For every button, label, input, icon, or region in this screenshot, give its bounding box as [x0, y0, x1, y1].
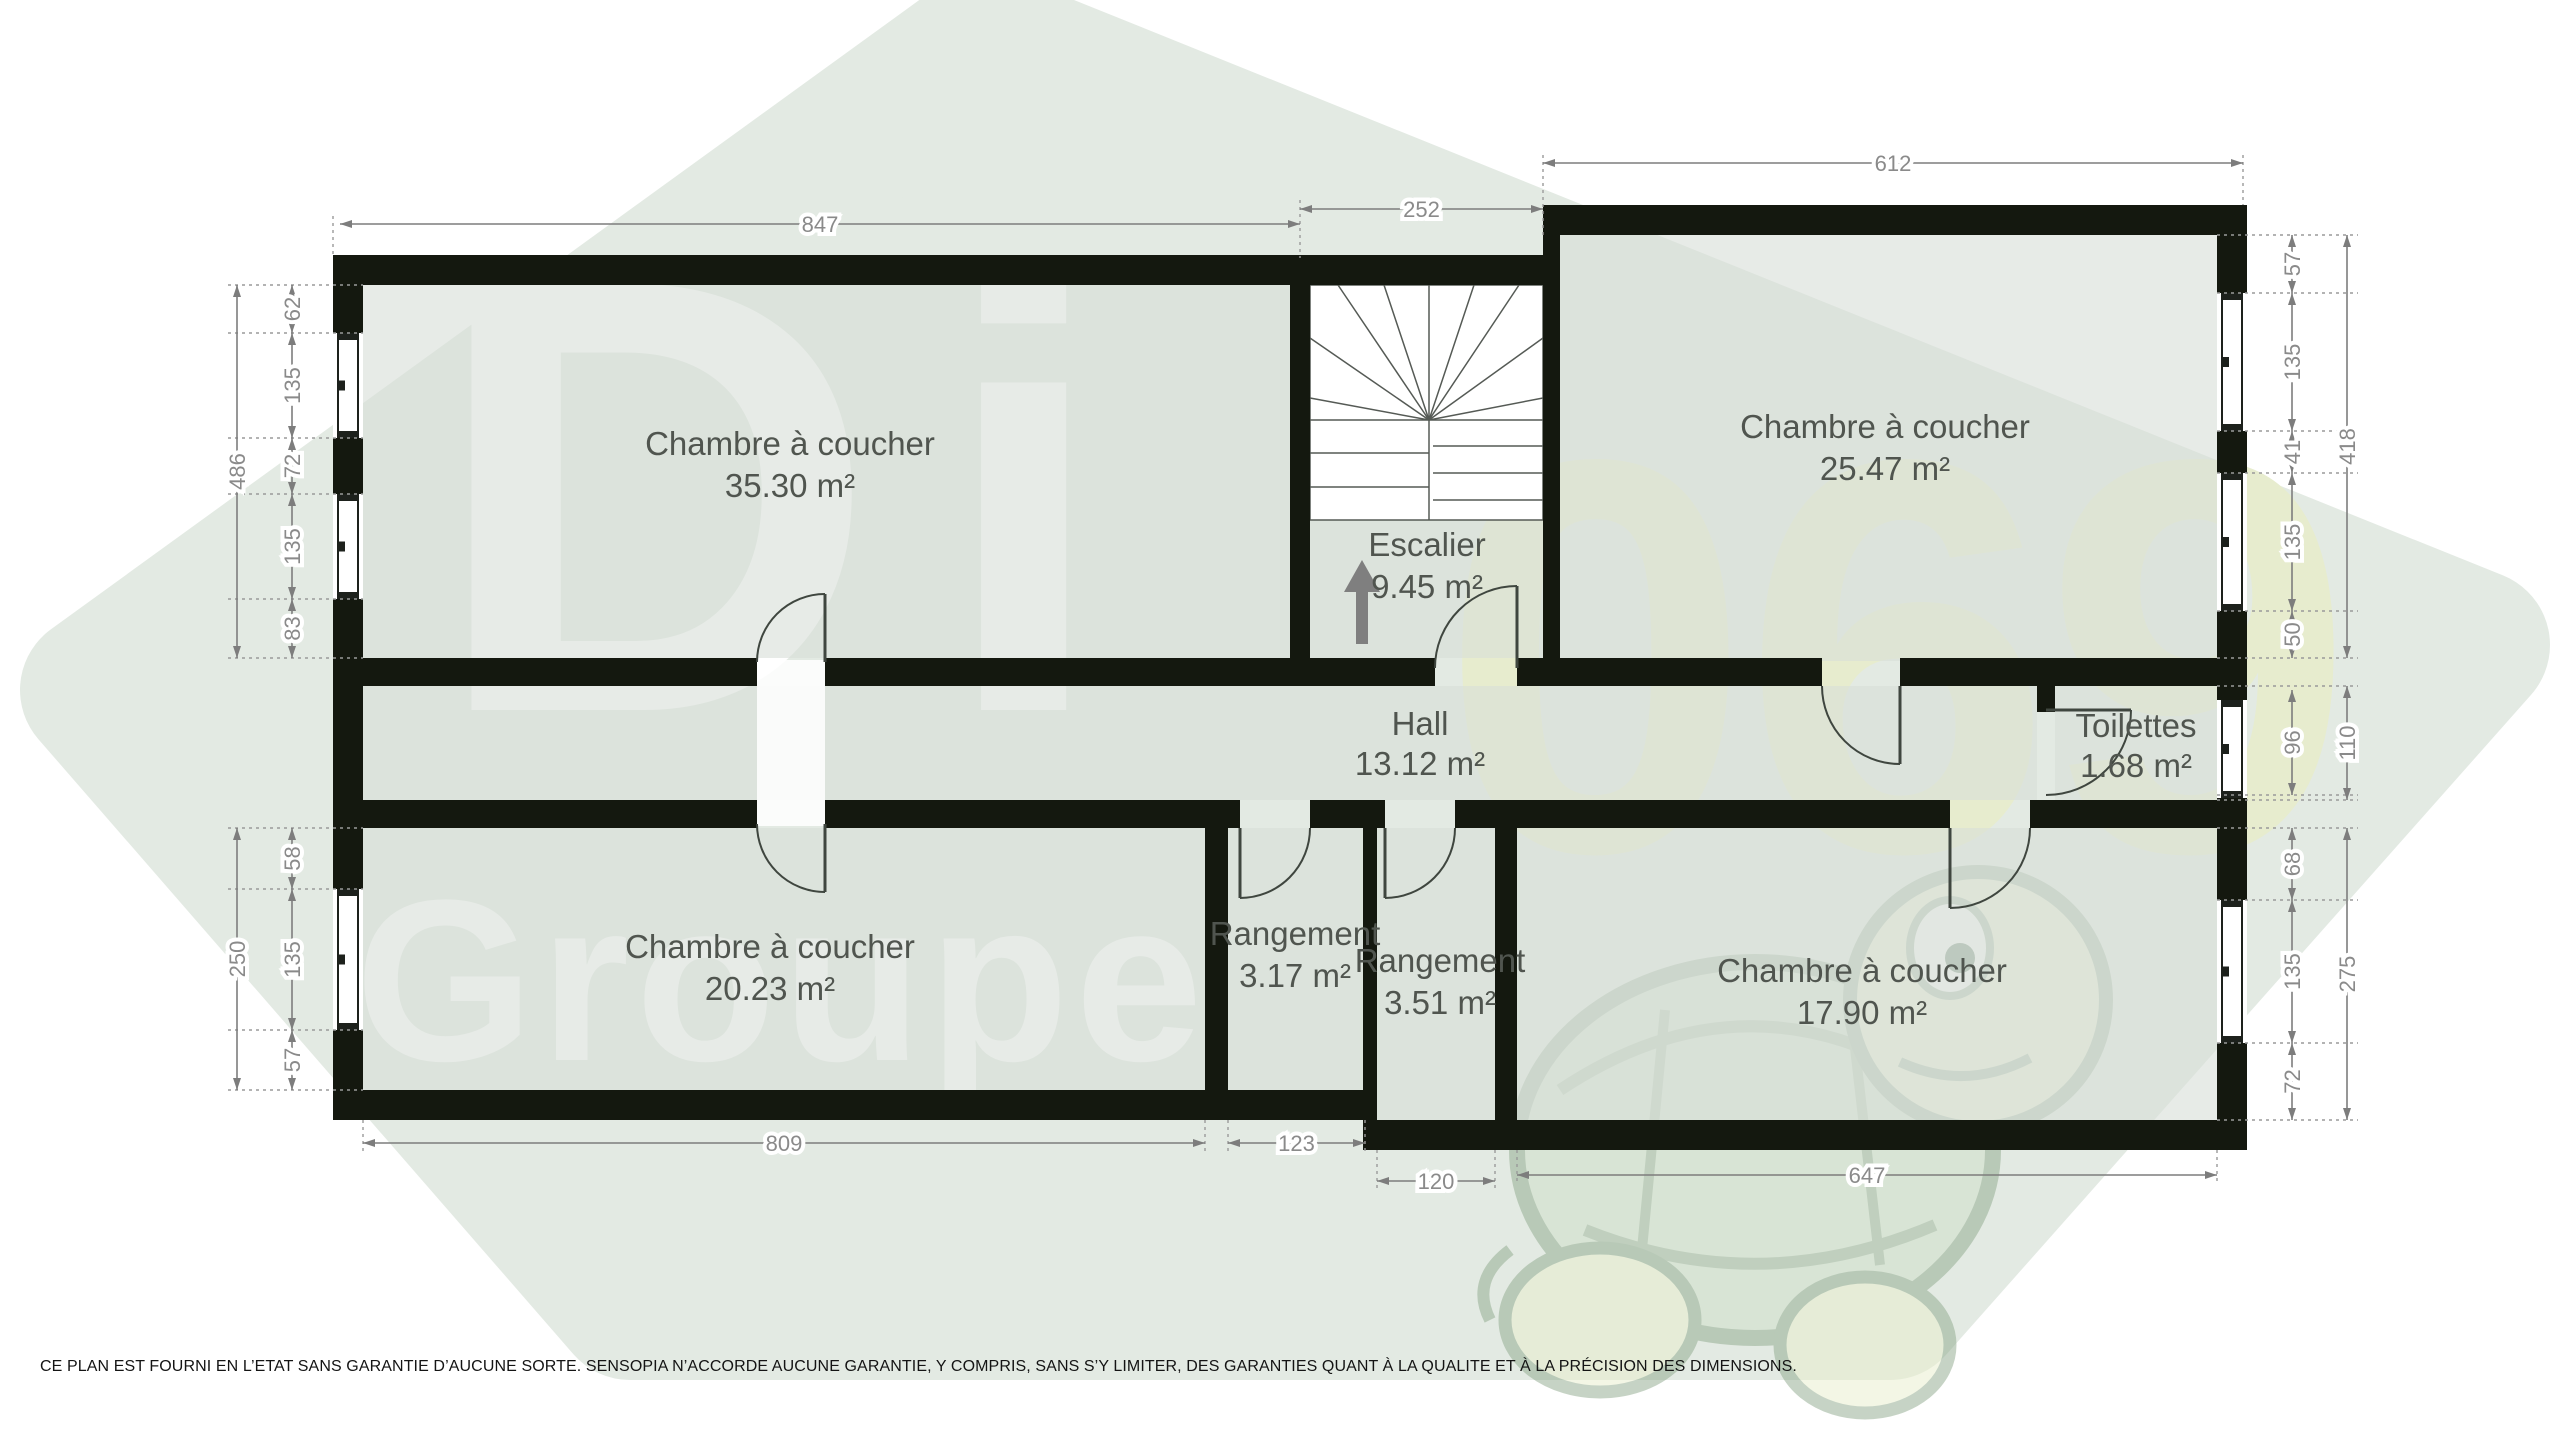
dimension-value: 135 [280, 528, 305, 565]
floorplan-page: 069 Di Groupe [0, 0, 2560, 1440]
dimension-value: 110 [2335, 725, 2360, 760]
dimension-value: 275 [2335, 956, 2360, 993]
dimension-value: 135 [280, 367, 305, 404]
dimension-value: 41 [2280, 440, 2305, 464]
dimension-value: 612 [1875, 151, 1912, 176]
room-label-bedroom-tl: Chambre à coucher [645, 425, 935, 462]
room-area-bedroom-br: 17.90 m² [1797, 994, 1927, 1031]
room-label-bedroom-br: Chambre à coucher [1717, 952, 2007, 989]
dimension-value: 135 [2280, 344, 2305, 381]
dimension-value: 250 [225, 941, 250, 978]
room-label-stairs: Escalier [1368, 526, 1485, 563]
dimension-value: 135 [280, 941, 305, 978]
dimension-value: 83 [280, 616, 305, 640]
room-area-toilet: 1.68 m² [2080, 747, 2192, 784]
dimension-value: 68 [2280, 852, 2305, 876]
room-label-hall: Hall [1392, 705, 1449, 742]
dimension-value: 123 [1278, 1131, 1315, 1156]
dimension-value: 809 [766, 1131, 803, 1156]
room-area-bedroom-tl: 35.30 m² [725, 467, 855, 504]
room-label-storage2: Rangement [1355, 942, 1526, 979]
room-area-storage2: 3.51 m² [1384, 984, 1496, 1021]
dimension-value: 120 [1418, 1169, 1455, 1194]
dimension-value: 418 [2335, 428, 2360, 465]
dimension-value: 135 [2280, 524, 2305, 561]
dimension-value: 57 [2280, 252, 2305, 276]
room-area-bedroom-tr: 25.47 m² [1820, 450, 1950, 487]
dimension-value: 847 [802, 212, 839, 237]
dimension-value: 96 [2280, 730, 2305, 754]
dimension-value: 50 [2280, 622, 2305, 646]
dimension-value: 57 [280, 1048, 305, 1072]
dimension-value: 252 [1403, 197, 1440, 222]
dimension-value: 135 [2280, 953, 2305, 990]
disclaimer-text: CE PLAN EST FOURNI EN L’ETAT SANS GARANT… [40, 1358, 1797, 1376]
room-label-toilet: Toilettes [2075, 707, 2196, 744]
dimension-value: 647 [1849, 1163, 1886, 1188]
room-area-bedroom-bl: 20.23 m² [705, 970, 835, 1007]
room-label-bedroom-bl: Chambre à coucher [625, 928, 915, 965]
dimension-value: 72 [2280, 1069, 2305, 1093]
dimension-value: 62 [280, 297, 305, 321]
room-area-stairs: 9.45 m² [1371, 568, 1483, 605]
dimension-value: 72 [280, 454, 305, 478]
dimension-value: 58 [280, 846, 305, 870]
room-area-storage1: 3.17 m² [1239, 957, 1351, 994]
room-label-bedroom-tr: Chambre à coucher [1740, 408, 2030, 445]
floorplan-svg: 069 Di Groupe [0, 0, 2560, 1440]
dimension-value: 486 [225, 453, 250, 490]
room-area-hall: 13.12 m² [1355, 745, 1485, 782]
